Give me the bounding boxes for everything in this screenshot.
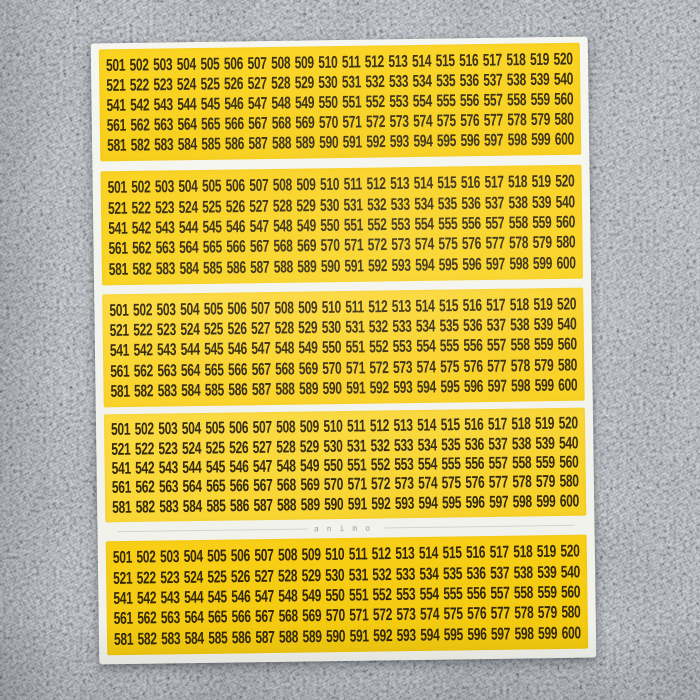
photo-vignette <box>0 0 700 700</box>
photo-scene: 5015025035045055065075085095105115125135… <box>0 0 700 700</box>
